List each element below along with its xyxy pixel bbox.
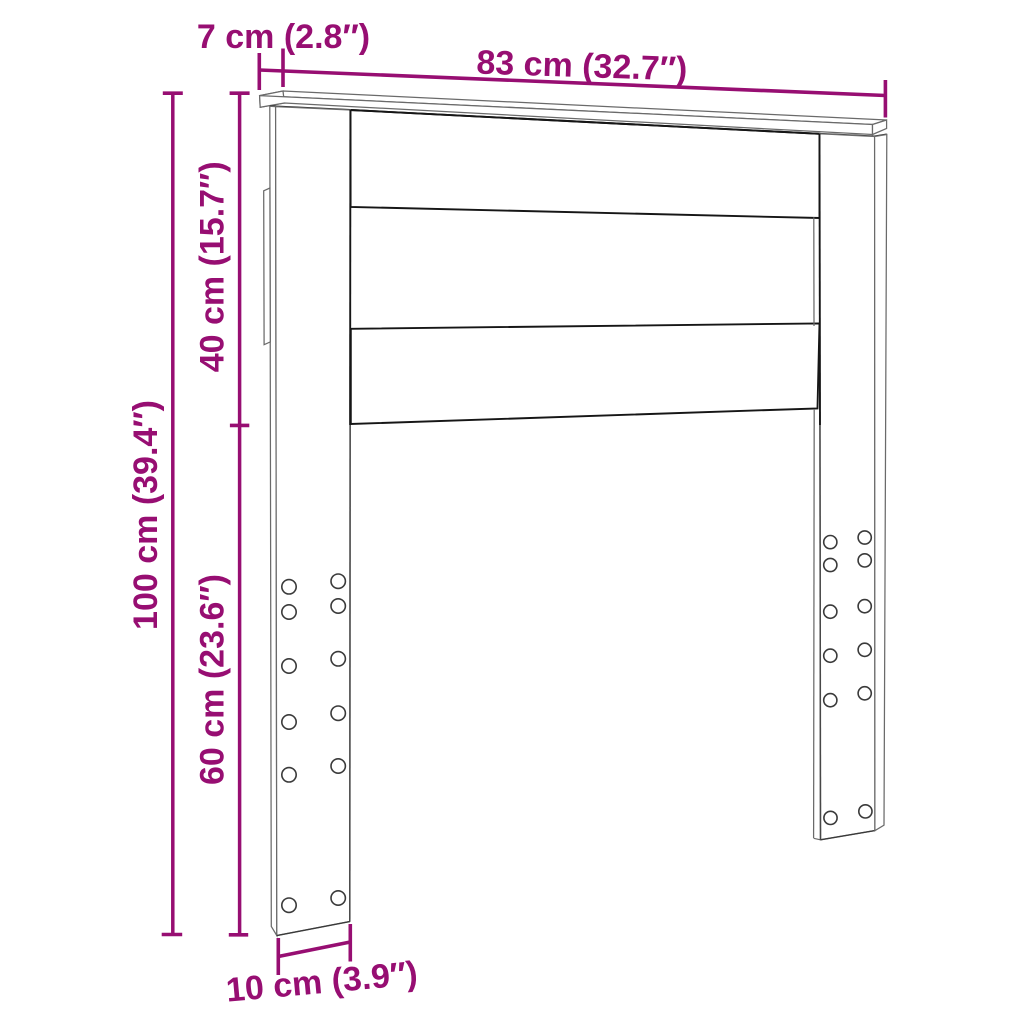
svg-text:60 cm (23.6″): 60 cm (23.6″) [194, 574, 232, 785]
svg-text:100 cm (39.4″): 100 cm (39.4″) [127, 400, 165, 630]
svg-text:40 cm (15.7″): 40 cm (15.7″) [194, 161, 232, 372]
svg-text:83 cm (32.7″): 83 cm (32.7″) [476, 44, 688, 89]
svg-text:7 cm (2.8″): 7 cm (2.8″) [197, 18, 370, 56]
